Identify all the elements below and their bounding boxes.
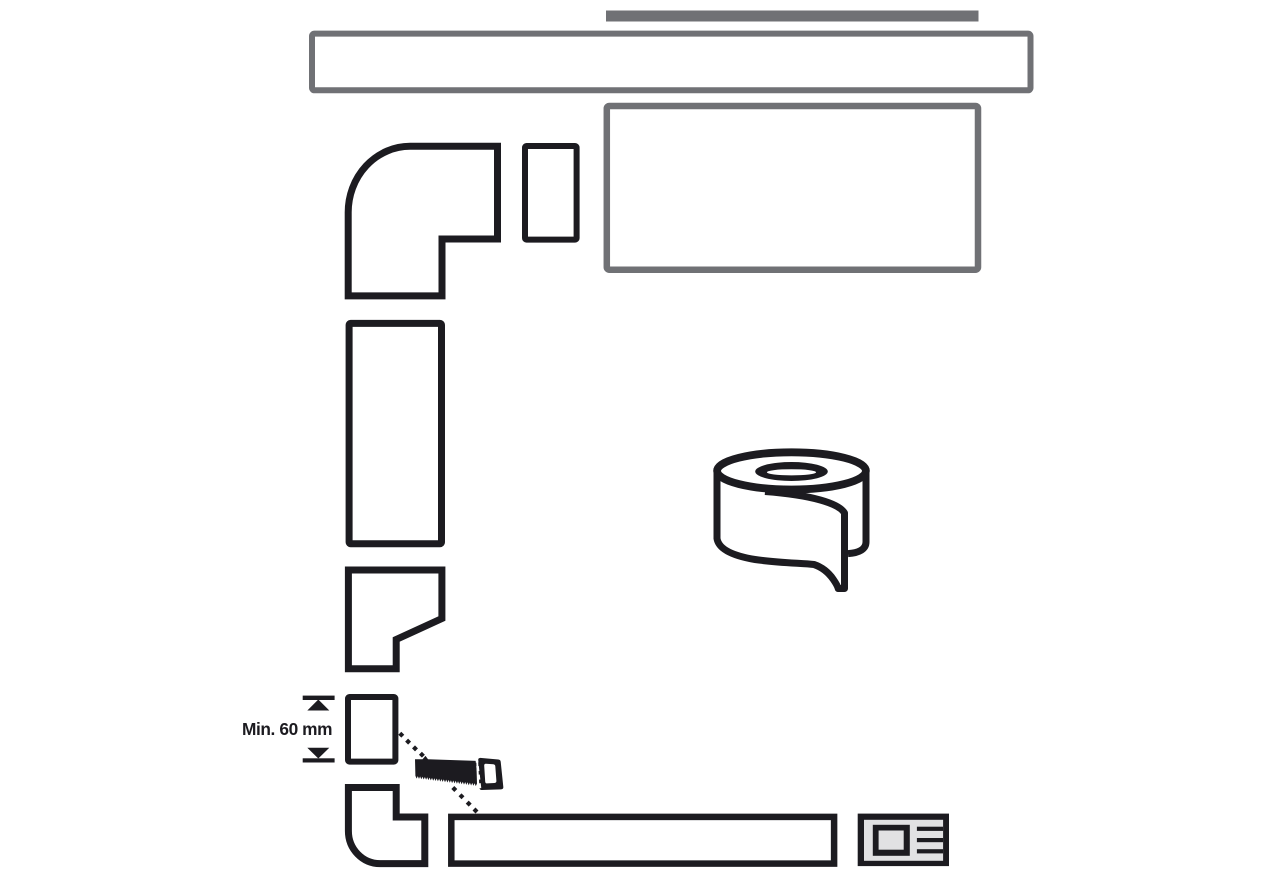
svg-text:Min. 60 mm: Min. 60 mm bbox=[242, 719, 332, 739]
